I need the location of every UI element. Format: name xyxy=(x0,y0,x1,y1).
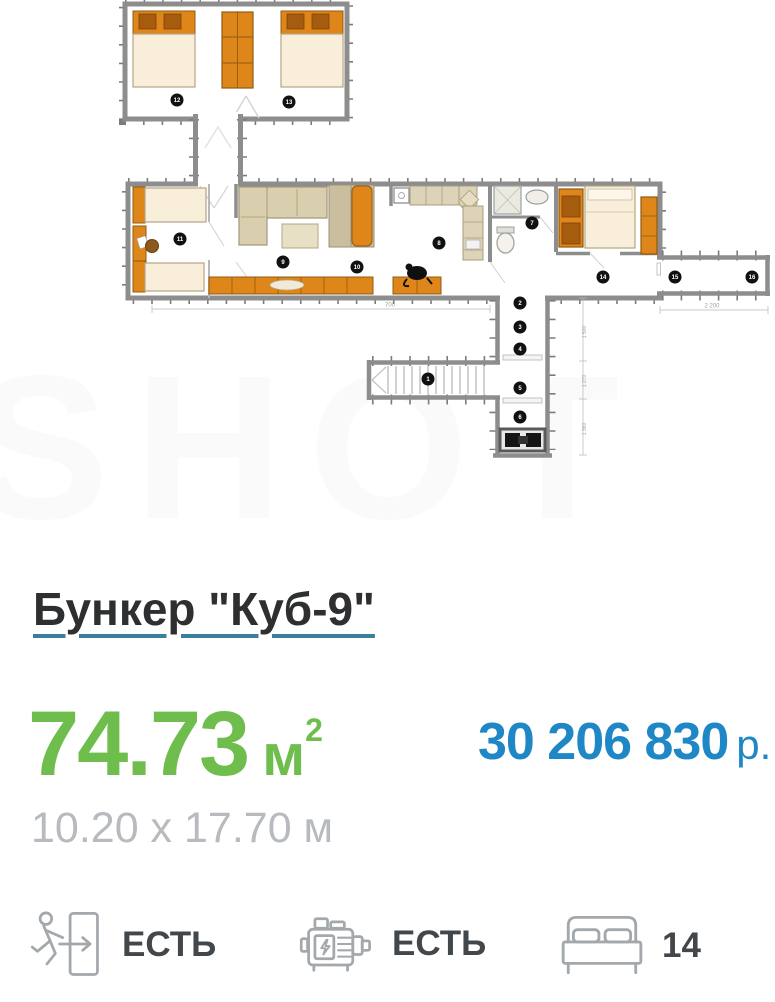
door-mark xyxy=(503,398,542,403)
room-marker: 5 xyxy=(514,382,527,395)
toilet xyxy=(497,233,514,253)
sleeping-places-icon xyxy=(556,910,648,982)
area-unit: м xyxy=(262,723,305,788)
room-marker: 7 xyxy=(526,217,539,230)
machinery-unit xyxy=(500,429,545,451)
price-currency: р. xyxy=(736,721,771,768)
price: 30 206 830р. xyxy=(478,712,771,772)
door-mark xyxy=(503,355,542,360)
feature-generator: ЕСТЬ xyxy=(296,904,486,984)
dimension-label: 1 500 xyxy=(582,326,588,339)
coffee-table xyxy=(282,224,318,248)
floor-plan: 700 2 200 1 500 1 270 1 360 12 13 11 9 1… xyxy=(0,0,775,470)
svg-text:12: 12 xyxy=(174,98,181,104)
room-marker: 3 xyxy=(514,321,527,334)
top-bedroom-block xyxy=(125,4,347,119)
bed-top-left xyxy=(133,11,195,87)
bed-top-right xyxy=(281,11,343,87)
svg-text:16: 16 xyxy=(749,275,756,281)
room-marker: 6 xyxy=(514,411,527,424)
svg-text:15: 15 xyxy=(672,275,679,281)
floor-plan-image: 700 2 200 1 500 1 270 1 360 12 13 11 9 1… xyxy=(0,0,775,470)
feature-label: ЕСТЬ xyxy=(392,924,486,964)
room-marker: 8 xyxy=(433,237,446,250)
room-marker: 2 xyxy=(514,297,527,310)
chair xyxy=(146,240,159,253)
feature-sleeping-places: 14 xyxy=(556,910,701,982)
svg-text:14: 14 xyxy=(600,275,607,281)
door-mark xyxy=(657,263,661,275)
room-marker: 15 xyxy=(669,271,682,284)
listing-page: SHOT xyxy=(0,0,775,1002)
svg-text:11: 11 xyxy=(177,237,184,243)
feature-emergency-exit: ЕСТЬ xyxy=(28,902,216,988)
features-row: ЕСТЬ ЕСТЬ xyxy=(0,896,775,1002)
room-marker: 9 xyxy=(277,256,290,269)
room-marker: 10 xyxy=(351,261,364,274)
generator-icon xyxy=(296,904,378,984)
dimension-label: 2 200 xyxy=(704,304,720,310)
listing-title[interactable]: Бункер "Куб-9" xyxy=(33,582,375,636)
price-number: 30 206 830 xyxy=(478,713,728,771)
area-value: 74.73м2 xyxy=(28,692,323,797)
basin xyxy=(526,190,548,204)
svg-text:13: 13 xyxy=(286,100,293,106)
area-superscript: 2 xyxy=(305,712,323,748)
area-number: 74.73 xyxy=(28,693,248,795)
svg-text:10: 10 xyxy=(354,265,361,271)
vertical-corridor xyxy=(493,294,552,456)
plan-dimensions: 10.20 x 17.70 м xyxy=(31,804,333,853)
room-marker: 13 xyxy=(283,96,296,109)
feature-label: ЕСТЬ xyxy=(122,925,216,965)
room-marker: 12 xyxy=(171,94,184,107)
room-marker: 1 xyxy=(422,373,435,386)
feature-label: 14 xyxy=(662,926,701,966)
room-marker: 11 xyxy=(174,233,187,246)
room-marker: 4 xyxy=(514,343,527,356)
emergency-exit-icon xyxy=(28,902,108,988)
living-area xyxy=(239,185,374,248)
counter xyxy=(410,186,459,205)
room-marker: 16 xyxy=(746,271,759,284)
room-marker: 14 xyxy=(597,271,610,284)
dimension-label: 700 xyxy=(385,303,396,309)
wardrobe-top-room xyxy=(222,12,253,88)
dimension-label: 1 270 xyxy=(582,375,588,388)
sink xyxy=(394,188,409,203)
dimension-label: 1 360 xyxy=(582,423,588,436)
